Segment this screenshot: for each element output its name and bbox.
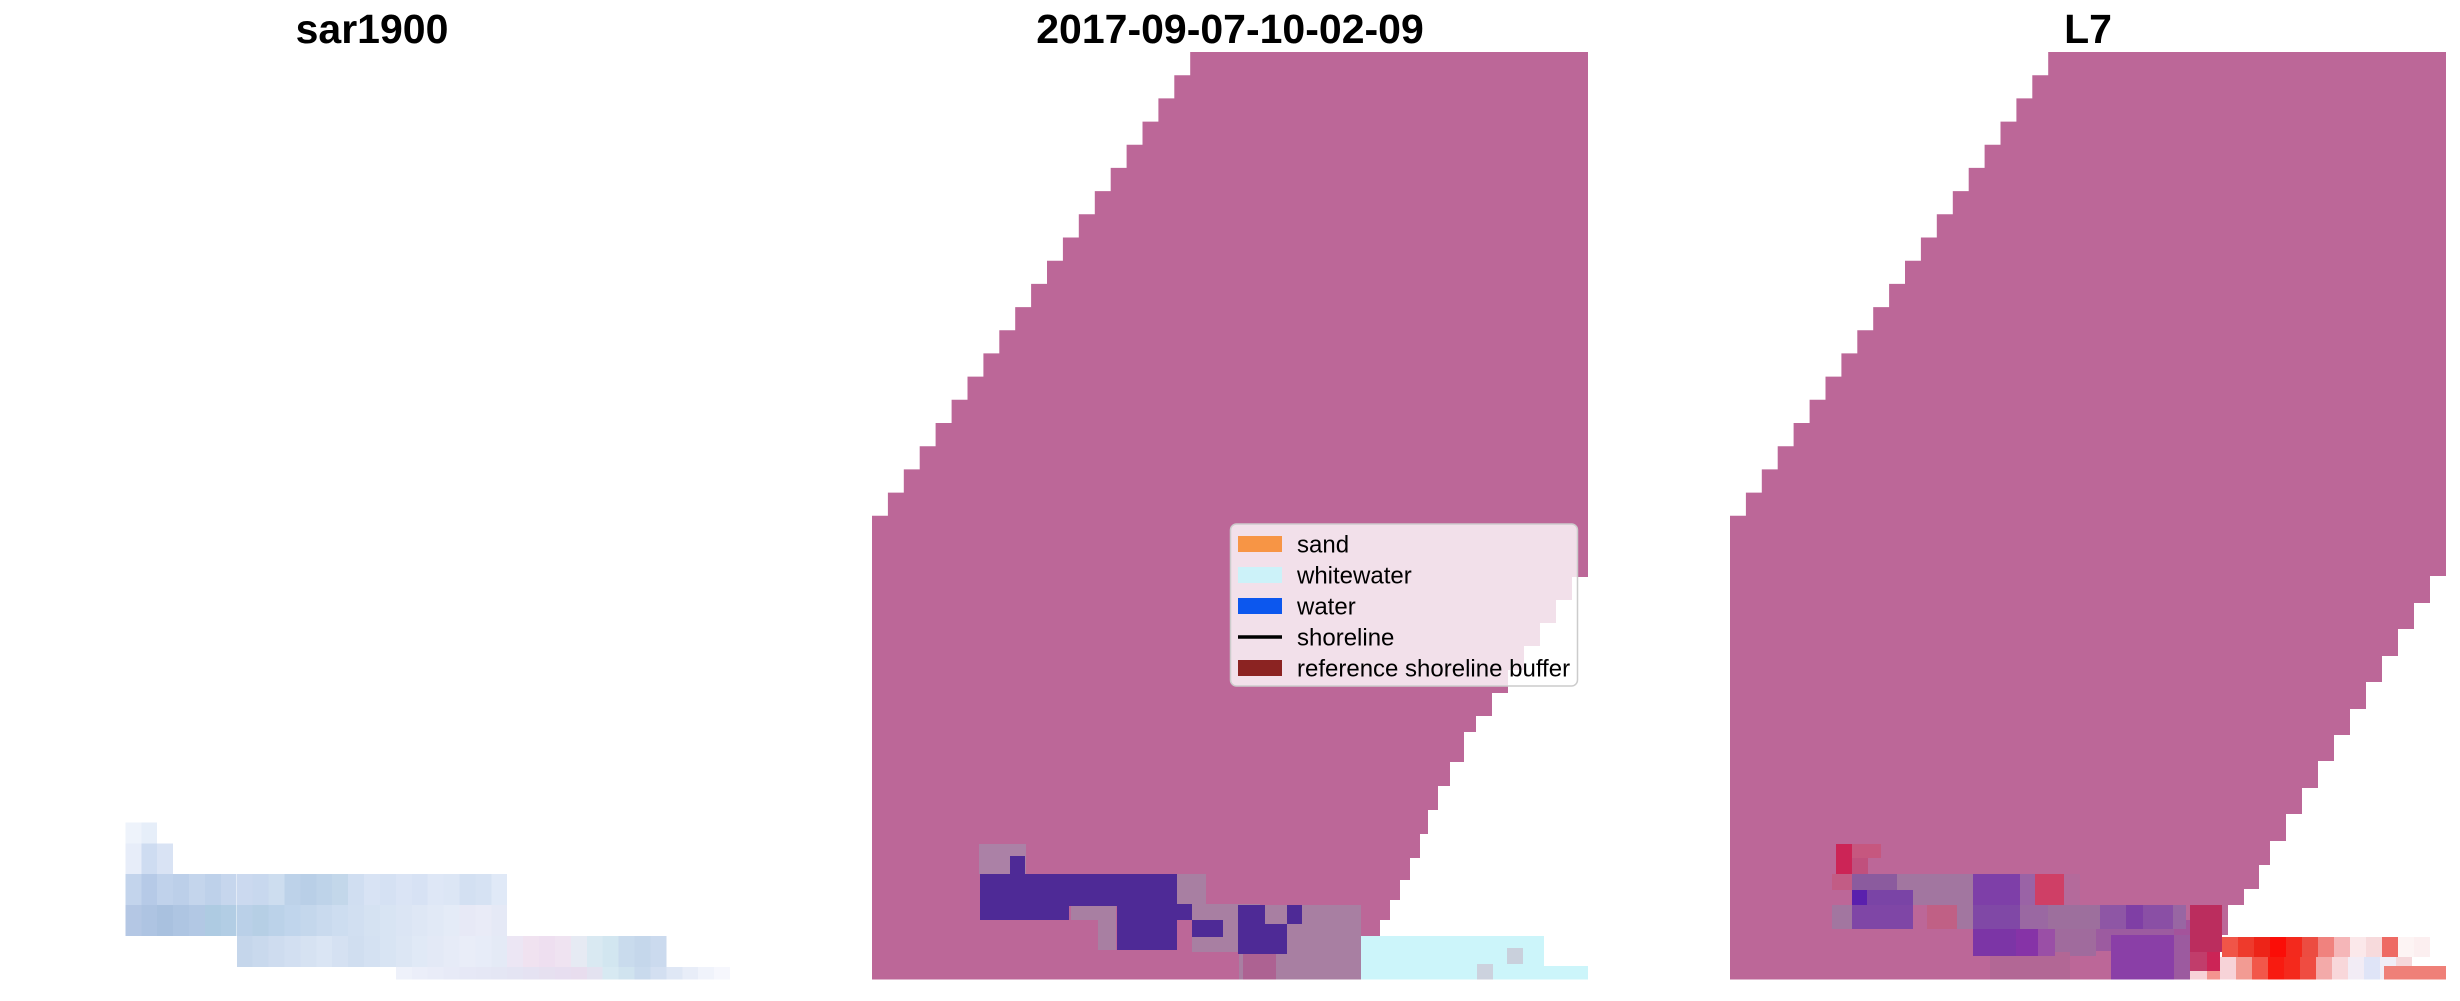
svg-text:whitewater: whitewater: [1296, 563, 1412, 590]
svg-text:2017-09-07-10-02-09: 2017-09-07-10-02-09: [1036, 6, 1424, 52]
svg-text:sand: sand: [1297, 532, 1349, 559]
svg-text:water: water: [1296, 594, 1356, 621]
svg-text:shoreline: shoreline: [1297, 625, 1394, 652]
svg-text:L7: L7: [2064, 6, 2112, 52]
svg-text:reference shoreline buffer: reference shoreline buffer: [1297, 656, 1570, 683]
svg-text:sar1900: sar1900: [296, 6, 449, 52]
